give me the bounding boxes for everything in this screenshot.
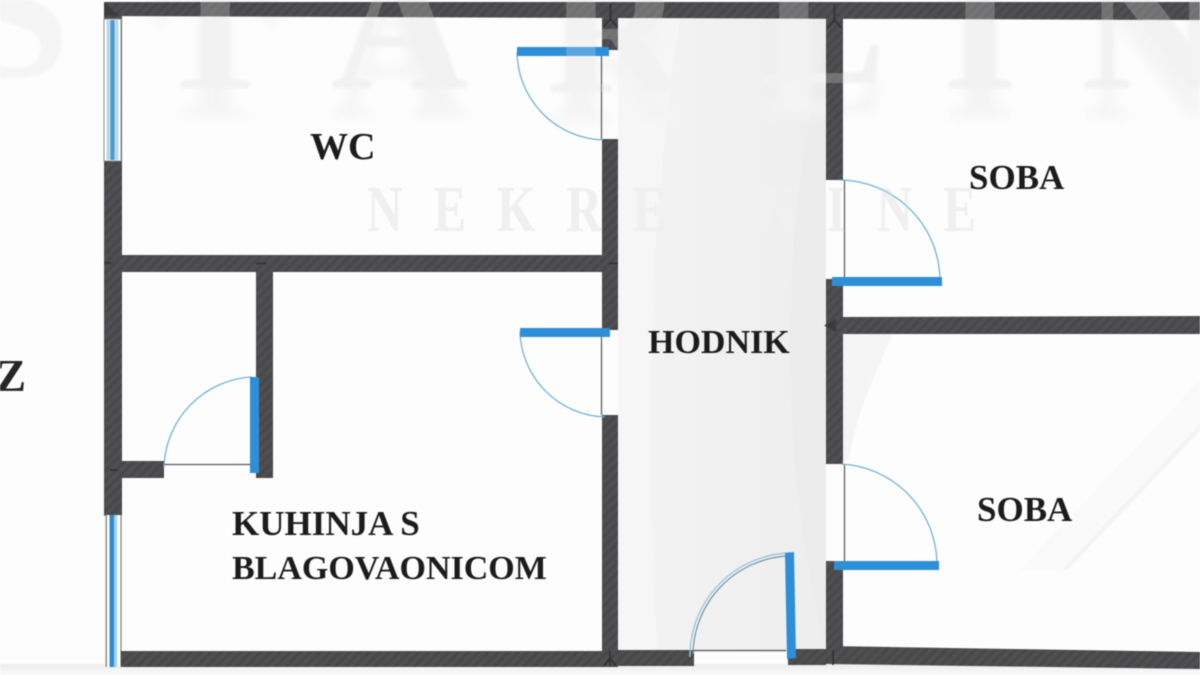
svg-text:NEKRETNINE: NEKRETNINE — [367, 172, 1007, 246]
svg-text:N: N — [1082, 0, 1200, 130]
svg-text:SOBA: SOBA — [977, 490, 1073, 529]
svg-text:T: T — [152, 0, 279, 130]
svg-text:A: A — [331, 0, 468, 130]
svg-text:S: S — [0, 0, 70, 118]
svg-text:WC: WC — [310, 126, 375, 168]
svg-text:SOBA: SOBA — [969, 158, 1065, 197]
svg-text:L: L — [760, 0, 887, 125]
svg-text:I: I — [943, 0, 1017, 130]
svg-text:Z: Z — [0, 351, 26, 401]
svg-text:HODNIK: HODNIK — [648, 324, 790, 361]
svg-text:KUHINJA S: KUHINJA S — [232, 504, 420, 543]
svg-text:R: R — [547, 0, 686, 134]
svg-text:BLAGOVAONICOM: BLAGOVAONICOM — [232, 550, 547, 587]
